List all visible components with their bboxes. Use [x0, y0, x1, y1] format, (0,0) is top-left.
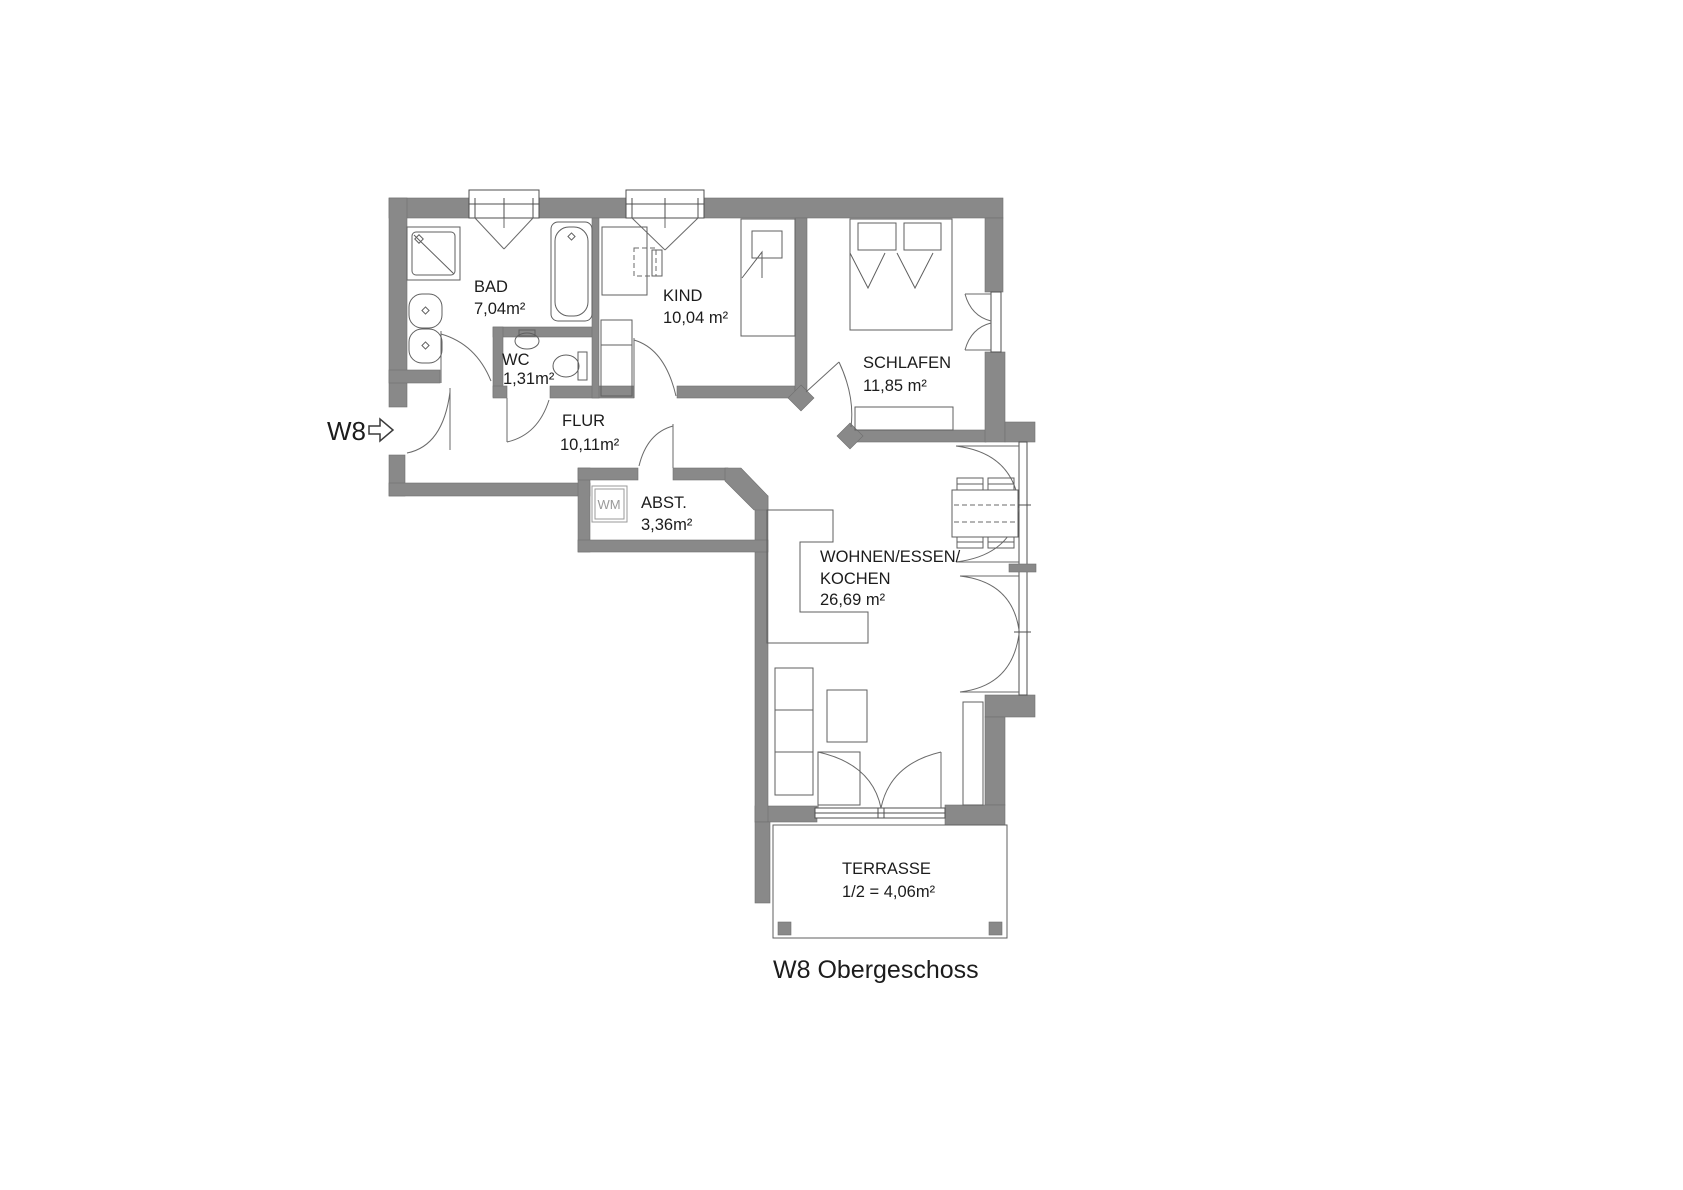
bed — [741, 219, 795, 336]
glass-facade — [956, 442, 1036, 695]
desk-chair — [634, 248, 656, 276]
pillow — [858, 223, 896, 250]
room-label-bad: BAD — [474, 278, 508, 296]
wall-segment — [945, 805, 1005, 825]
wall-segment — [592, 218, 599, 398]
terrace-door — [815, 752, 945, 818]
wall-segment — [755, 822, 770, 903]
room-label-schlafen: SCHLAFEN — [863, 354, 951, 372]
terrace-post — [778, 922, 791, 935]
room-label-wc: WC — [502, 351, 530, 369]
room-area-wohnen: 26,69 m² — [820, 591, 886, 609]
wall-segment — [850, 430, 986, 442]
wall-segment — [389, 370, 440, 383]
pillow — [752, 231, 782, 258]
bathtub — [551, 222, 592, 321]
wardrobe — [855, 407, 953, 430]
wall-segment — [985, 717, 1005, 805]
shower-drain-icon — [415, 235, 423, 243]
sofa — [775, 668, 813, 795]
wall-segment — [533, 198, 632, 218]
tap-icon — [422, 307, 429, 314]
room-area-terrasse: 1/2 = 4,06m² — [842, 883, 936, 901]
floor-plan-page: WM BAD 7,04m² WC 1,31m² KIND 10,04 m² SC… — [0, 0, 1683, 1190]
wall-segment — [677, 386, 795, 398]
tap-icon — [422, 342, 429, 349]
terrace-post — [989, 922, 1002, 935]
wardrobe — [601, 320, 632, 396]
wall-segment — [985, 352, 1005, 442]
wall-chamfer — [725, 468, 768, 510]
schlafen-furniture — [850, 219, 953, 430]
plan-title: W8 Obergeschoss — [773, 956, 979, 984]
kind-door — [634, 338, 676, 398]
room-label-wohnen-line1: WOHNEN/ESSEN/ — [820, 548, 961, 566]
room-area-bad: 7,04m² — [474, 300, 526, 318]
window-frame — [991, 292, 1001, 352]
blanket-fold — [850, 253, 885, 288]
facade-mullion — [1009, 564, 1036, 572]
washing-machine: WM — [592, 486, 627, 522]
wall-segment — [985, 695, 1035, 717]
entrance-marker: W8 — [327, 416, 393, 446]
sink — [409, 329, 442, 363]
room-label-abst: ABST. — [641, 494, 687, 512]
wall-segment — [493, 327, 598, 337]
entrance-label: W8 — [327, 416, 366, 446]
wall-segment — [578, 468, 638, 480]
wall-segment — [673, 468, 728, 480]
armchair — [818, 752, 860, 805]
room-area-flur: 10,11m² — [560, 436, 620, 454]
pillow — [904, 223, 941, 250]
wall-segment — [578, 468, 590, 552]
room-label-terrasse: TERRASSE — [842, 860, 931, 878]
wc-door — [507, 398, 549, 442]
wall-segment — [698, 198, 1003, 218]
wall-segment — [389, 483, 590, 496]
wall-segment — [1005, 422, 1035, 442]
dining-table — [952, 490, 1018, 537]
wall-segment — [578, 540, 768, 552]
room-area-kind: 10,04 m² — [663, 309, 729, 327]
bad-door — [441, 331, 491, 383]
room-area-abst: 3,36m² — [641, 516, 693, 534]
wall-segment — [795, 218, 807, 398]
kind-furniture — [601, 219, 795, 396]
double-bed — [850, 219, 952, 330]
room-label-wohnen-line2: KOCHEN — [820, 570, 891, 588]
window-schlafen — [965, 292, 1001, 352]
desk — [602, 227, 647, 295]
room-area-schlafen: 11,85 m² — [863, 377, 927, 395]
entrance-arrow-icon — [369, 419, 393, 441]
floor-plan-drawing: WM BAD 7,04m² WC 1,31m² KIND 10,04 m² SC… — [0, 0, 1683, 1190]
toilet — [553, 355, 579, 377]
wall-segment — [985, 218, 1003, 292]
room-label-kind: KIND — [663, 287, 703, 305]
entry-door — [407, 388, 450, 453]
coffee-table — [827, 690, 867, 742]
room-label-flur: FLUR — [562, 412, 605, 430]
sideboard — [963, 702, 983, 805]
window-kind — [626, 190, 704, 250]
wohnen-furniture — [767, 478, 1018, 805]
window-bad — [469, 190, 539, 249]
washing-machine-label: WM — [597, 497, 620, 512]
blanket-fold — [897, 253, 933, 288]
room-area-wc: 1,31m² — [503, 370, 555, 388]
abst-door — [639, 424, 673, 468]
tap-icon — [568, 233, 575, 240]
sink — [409, 294, 442, 328]
terrace-outline — [773, 825, 1007, 938]
wall-end-cap — [837, 423, 863, 449]
schlafen-door — [806, 362, 852, 427]
